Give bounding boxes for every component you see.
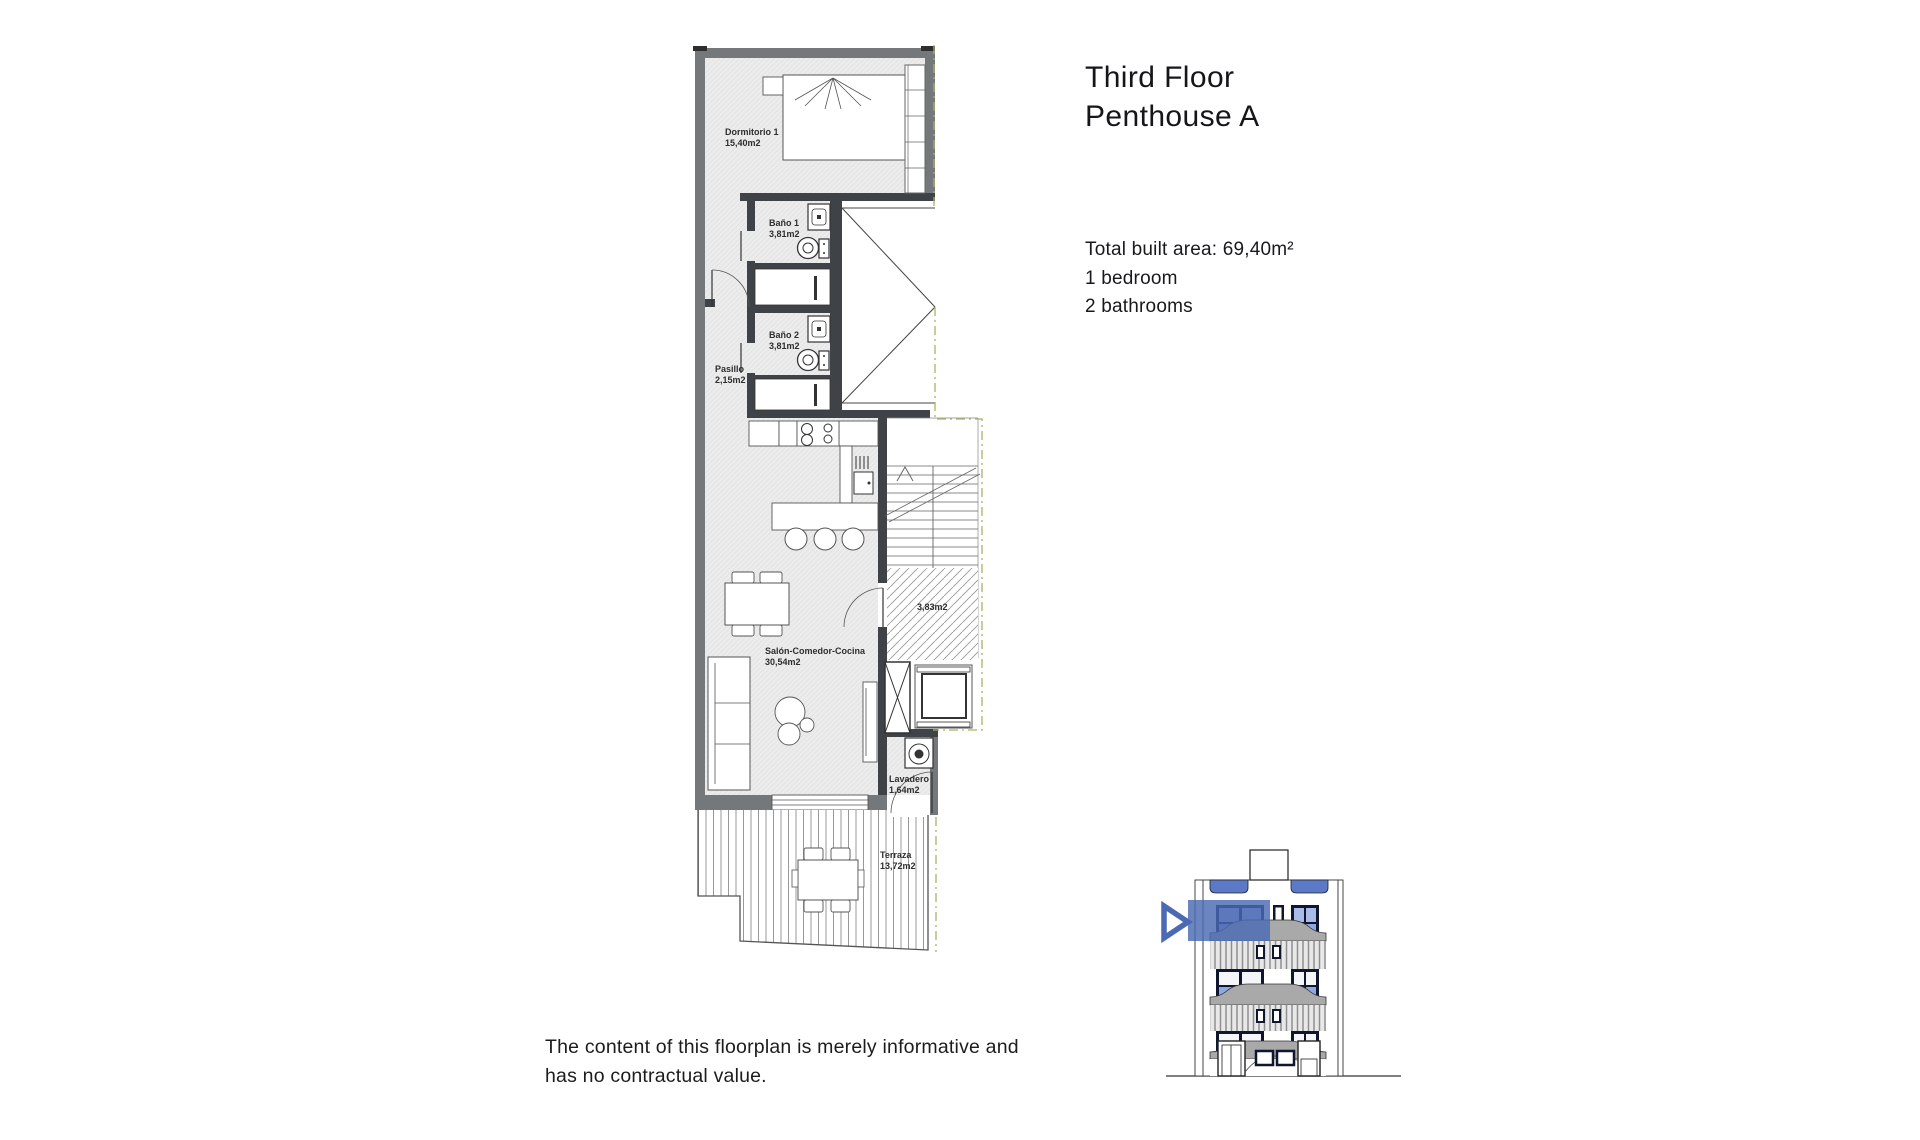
bathrooms-text: 2 bathrooms [1085, 293, 1294, 322]
room-label-dormitorio1-area: 15,40m2 [725, 138, 761, 148]
disclaimer-text: The content of this floorplan is merely … [545, 1033, 1145, 1091]
room-label-bano2-area: 3,81m2 [769, 341, 800, 351]
sofa-icon [708, 657, 750, 790]
bedrooms-text: 1 bedroom [1085, 265, 1294, 294]
ground-window-1 [1256, 1051, 1273, 1065]
bathroom1-shower-icon [755, 269, 830, 305]
total-area-text: Total built area: 69,40m² [1085, 236, 1294, 265]
landing-hatch [887, 568, 978, 660]
wardrobe-icon [905, 65, 925, 193]
summary-block: Total built area: 69,40m² 1 bedroom 2 ba… [1085, 236, 1294, 322]
room-label-pasillo-area: 2,15m2 [715, 375, 746, 385]
stove-icon [797, 421, 839, 446]
living-window [772, 795, 868, 810]
floorplan-page: Dormitorio 1 15,40m2 Baño 1 3,81m2 Baño … [0, 0, 1920, 1140]
room-label-dormitorio1-name: Dormitorio 1 [725, 127, 779, 137]
floor-highlight [1188, 900, 1270, 941]
room-label-bano1-area: 3,81m2 [769, 229, 800, 239]
disclaimer-line1: The content of this floorplan is merely … [545, 1033, 1145, 1062]
floor-marker-arrow-icon [1164, 906, 1188, 938]
facade-band-1 [1210, 941, 1326, 969]
elevator-shaft-icon [885, 662, 910, 733]
bed-icon [783, 75, 925, 160]
roof-box [1250, 850, 1288, 880]
page-title-line1: Third Floor [1085, 58, 1260, 97]
room-label-terraza-name: Terraza [880, 850, 912, 860]
tv-unit-icon [863, 682, 877, 762]
room-label-salon-name: Salón-Comedor-Cocina [765, 646, 866, 656]
washing-machine-icon [905, 738, 933, 768]
bathroom1-sink-icon [808, 204, 830, 230]
bathroom1-toilet-icon [798, 238, 830, 259]
building-elevation [1158, 843, 1408, 1088]
ground-window-2 [1277, 1051, 1294, 1065]
bathroom2-sink-icon [808, 316, 830, 342]
room-label-terraza-area: 13,72m2 [880, 861, 916, 871]
room-label-bano2-name: Baño 2 [769, 330, 799, 340]
facade-band-2 [1210, 1005, 1326, 1031]
bathroom2-shower-icon [755, 379, 830, 410]
room-label-landing-area: 3,83m2 [917, 602, 948, 612]
room-label-pasillo-name: Pasillo [715, 364, 745, 374]
disclaimer-line2: has no contractual value. [545, 1062, 1145, 1091]
room-label-salon-area: 30,54m2 [765, 657, 801, 667]
nightstand-icon [763, 77, 783, 95]
kitchen-island [772, 503, 878, 530]
lift-car-icon [915, 665, 972, 728]
bathroom2-toilet-icon [798, 350, 830, 371]
page-title-line2: Penthouse A [1085, 97, 1260, 136]
room-label-bano1-name: Baño 1 [769, 218, 799, 228]
page-title: Third Floor Penthouse A [1085, 58, 1260, 136]
bar-stool-icons [785, 528, 864, 550]
room-label-lavadero-name: Lavadero [889, 774, 930, 784]
room-label-lavadero-area: 1,64m2 [889, 785, 920, 795]
floorplan-drawing: Dormitorio 1 15,40m2 Baño 1 3,81m2 Baño … [665, 38, 1005, 978]
